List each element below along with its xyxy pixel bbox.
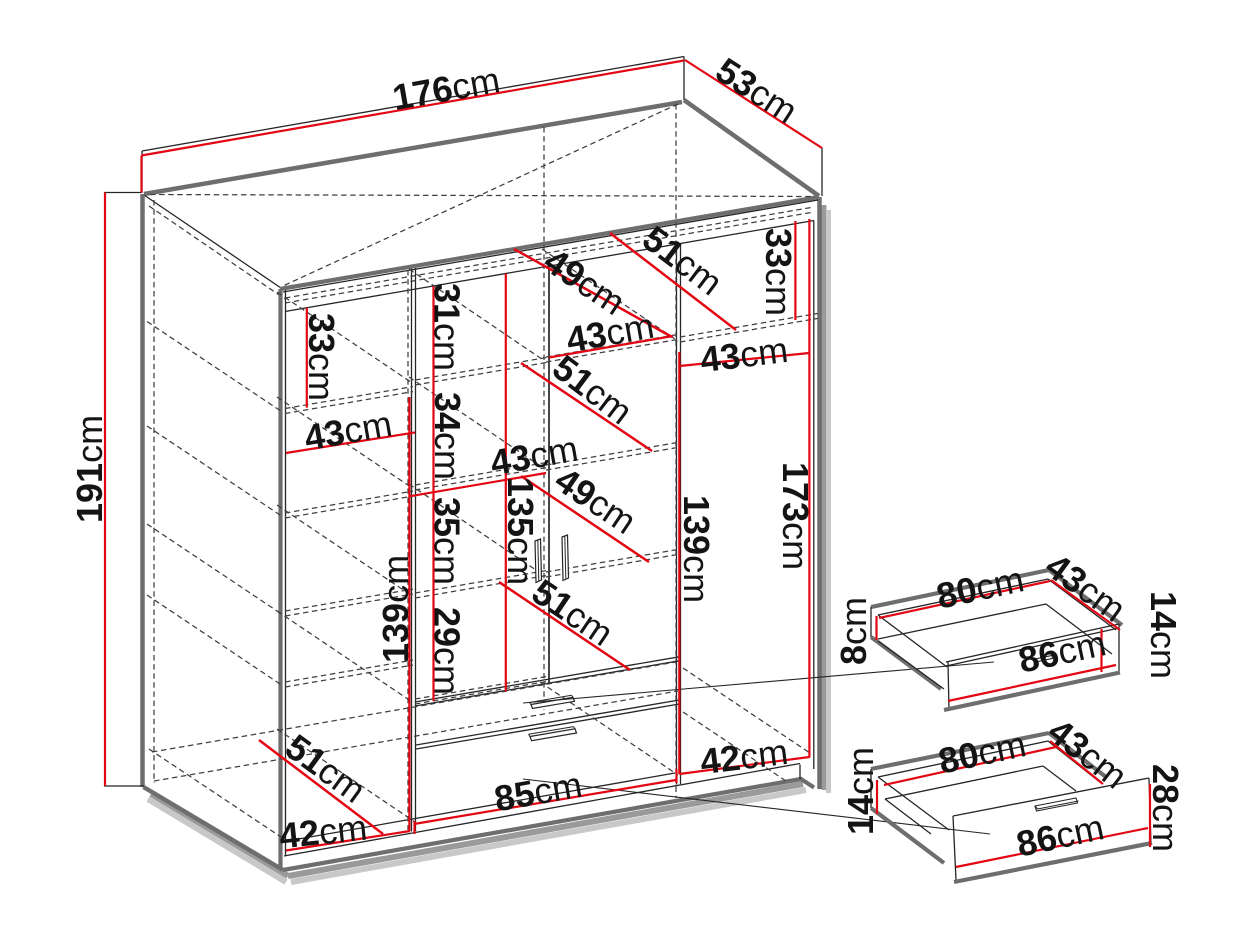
svg-text:173cm: 173cm (775, 462, 816, 570)
svg-text:14cm: 14cm (1143, 591, 1184, 679)
svg-text:28cm: 28cm (1145, 764, 1186, 852)
svg-text:33cm: 33cm (758, 228, 799, 316)
svg-text:14cm: 14cm (840, 747, 881, 835)
svg-text:31cm: 31cm (427, 283, 468, 371)
svg-text:29cm: 29cm (427, 607, 468, 695)
svg-text:34cm: 34cm (427, 392, 468, 480)
svg-text:191cm: 191cm (69, 415, 110, 523)
svg-text:33cm: 33cm (301, 313, 342, 401)
svg-text:8cm: 8cm (833, 597, 874, 665)
svg-text:139cm: 139cm (676, 495, 717, 603)
svg-text:35cm: 35cm (427, 497, 468, 585)
svg-text:135cm: 135cm (500, 477, 541, 585)
svg-text:139cm: 139cm (375, 555, 416, 663)
